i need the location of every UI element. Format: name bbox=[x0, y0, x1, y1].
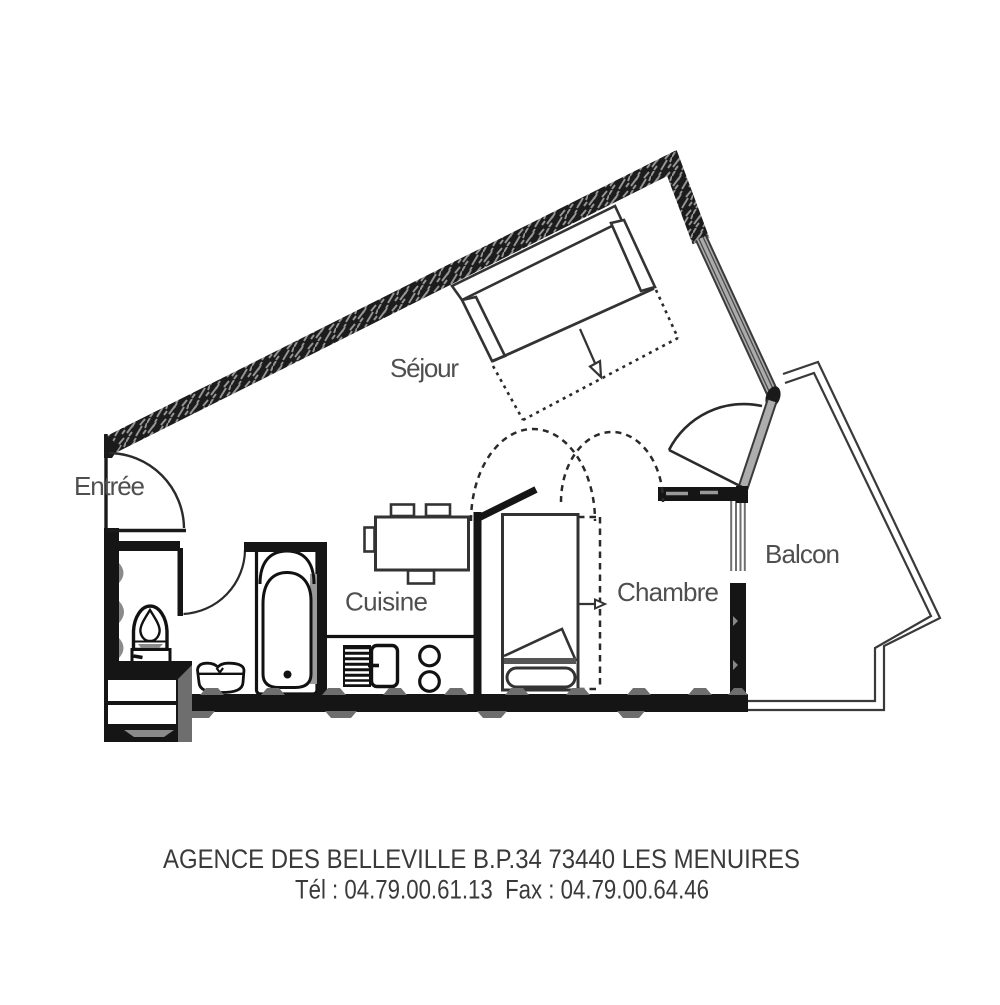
svg-text:Tél : 04.79.00.61.13 Fax : 04: Tél : 04.79.00.61.13 Fax : 04.79.00.64.4… bbox=[295, 875, 709, 905]
svg-text:Chambre: Chambre bbox=[617, 577, 719, 607]
svg-text:Balcon: Balcon bbox=[765, 539, 840, 569]
svg-text:Séjour: Séjour bbox=[390, 353, 459, 383]
svg-text:Cuisine: Cuisine bbox=[345, 587, 428, 617]
svg-text:Entrée: Entrée bbox=[74, 471, 145, 501]
svg-text:AGENCE DES BELLEVILLE B.P.34 7: AGENCE DES BELLEVILLE B.P.34 73440 LES M… bbox=[163, 844, 800, 874]
